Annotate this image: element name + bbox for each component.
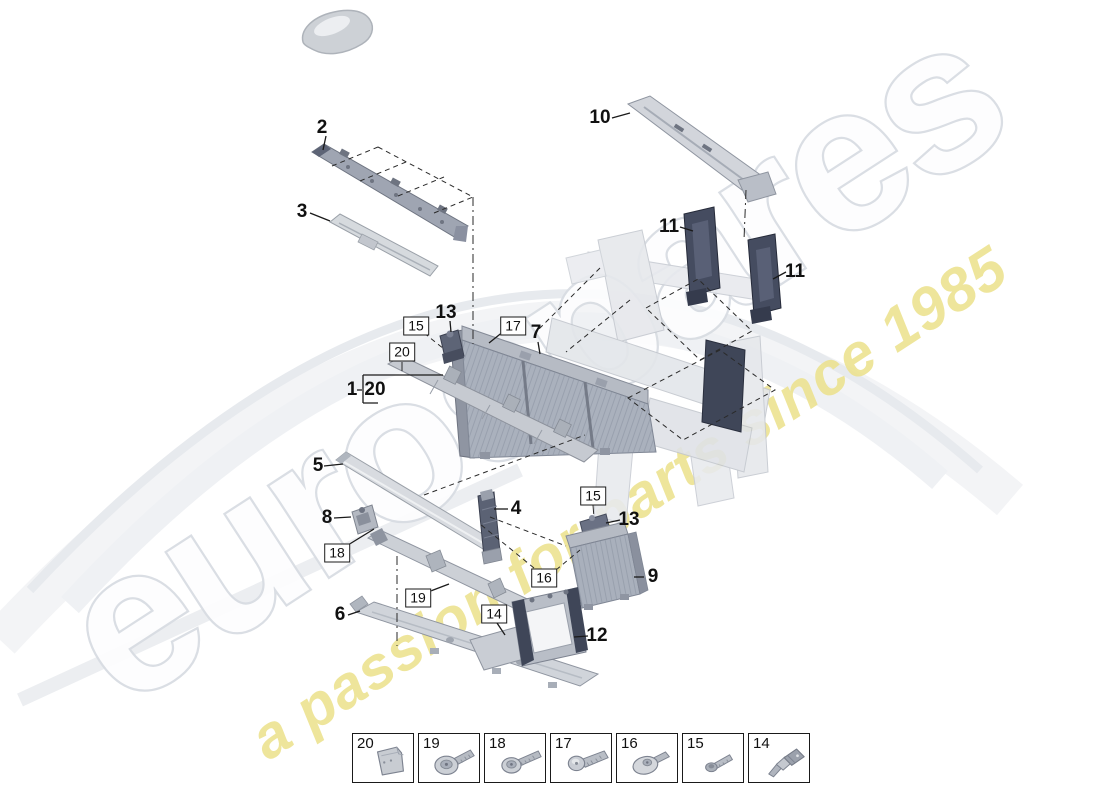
part-label-3: 3 xyxy=(297,201,308,223)
part-ref-box-19: 19 xyxy=(405,589,431,608)
fastener-cell-19: 19 xyxy=(418,733,480,783)
fastener-table: 20191817161514 xyxy=(352,733,810,783)
part-ref-box-16: 16 xyxy=(531,569,557,588)
part-label-6: 6 xyxy=(335,604,346,626)
part-label-11: 11 xyxy=(785,261,805,283)
part-label-8: 8 xyxy=(322,507,333,529)
part-label-20: 20 xyxy=(364,379,385,401)
part-label-9: 9 xyxy=(648,566,659,588)
part-label-4: 4 xyxy=(511,498,522,520)
fastener-cell-14: 14 xyxy=(748,733,810,783)
car-silhouette-icon xyxy=(303,10,373,53)
screw-big-washer-icon xyxy=(433,743,479,780)
fastener-cell-20: 20 xyxy=(352,733,414,783)
part-ref-box-15: 15 xyxy=(403,317,429,336)
part-label-5: 5 xyxy=(313,455,324,477)
part-label-7: 7 xyxy=(531,322,542,344)
part-label-10: 10 xyxy=(589,107,610,129)
part-label-12: 12 xyxy=(586,625,607,647)
part-label-13: 13 xyxy=(435,302,456,324)
part-ref-box-20: 20 xyxy=(389,343,415,362)
screw-pan-icon xyxy=(565,743,611,780)
part-ref-box-14: 14 xyxy=(481,605,507,624)
clip-plate-icon xyxy=(367,743,413,780)
bolt-small-icon xyxy=(697,743,743,780)
screw-washer-icon xyxy=(499,743,545,780)
pin-rivet-icon xyxy=(763,743,809,780)
part-label-13: 13 xyxy=(618,509,639,531)
fastener-cell-18: 18 xyxy=(484,733,546,783)
fastener-cell-16: 16 xyxy=(616,733,678,783)
part-ref-box-18: 18 xyxy=(324,544,350,563)
fastener-cell-15: 15 xyxy=(682,733,744,783)
part-2-air-guide-strip xyxy=(312,144,468,242)
parts-diagram: eurospares a passion for parts since 198… xyxy=(0,0,1100,800)
part-ref-box-17: 17 xyxy=(500,317,526,336)
part-label-1: 1 xyxy=(347,379,358,401)
diagram-art: eurospares a passion for parts since 198… xyxy=(0,0,1100,800)
part-label-11: 11 xyxy=(659,216,679,238)
part-label-2: 2 xyxy=(317,117,328,139)
part-3-seal-strip xyxy=(330,214,438,276)
part-ref-box-15: 15 xyxy=(580,487,606,506)
screw-flat-washer-icon xyxy=(631,743,677,780)
fastener-cell-17: 17 xyxy=(550,733,612,783)
